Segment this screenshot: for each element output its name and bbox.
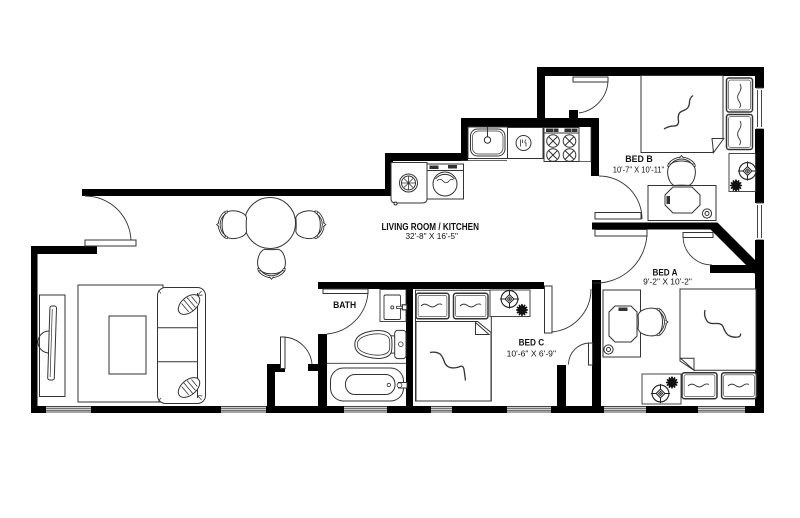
svg-text:10'-7" X 10'-11": 10'-7" X 10'-11" — [613, 165, 665, 175]
svg-text:BED B: BED B — [625, 154, 653, 164]
svg-text:10'-6" X 6'-9": 10'-6" X 6'-9" — [507, 348, 556, 358]
svg-text:BED C: BED C — [519, 338, 545, 348]
svg-text:9'-2" X 10'-2": 9'-2" X 10'-2" — [643, 277, 692, 287]
svg-text:32'-8" X 16'-5": 32'-8" X 16'-5" — [405, 231, 458, 241]
svg-text:BATH: BATH — [333, 300, 356, 310]
